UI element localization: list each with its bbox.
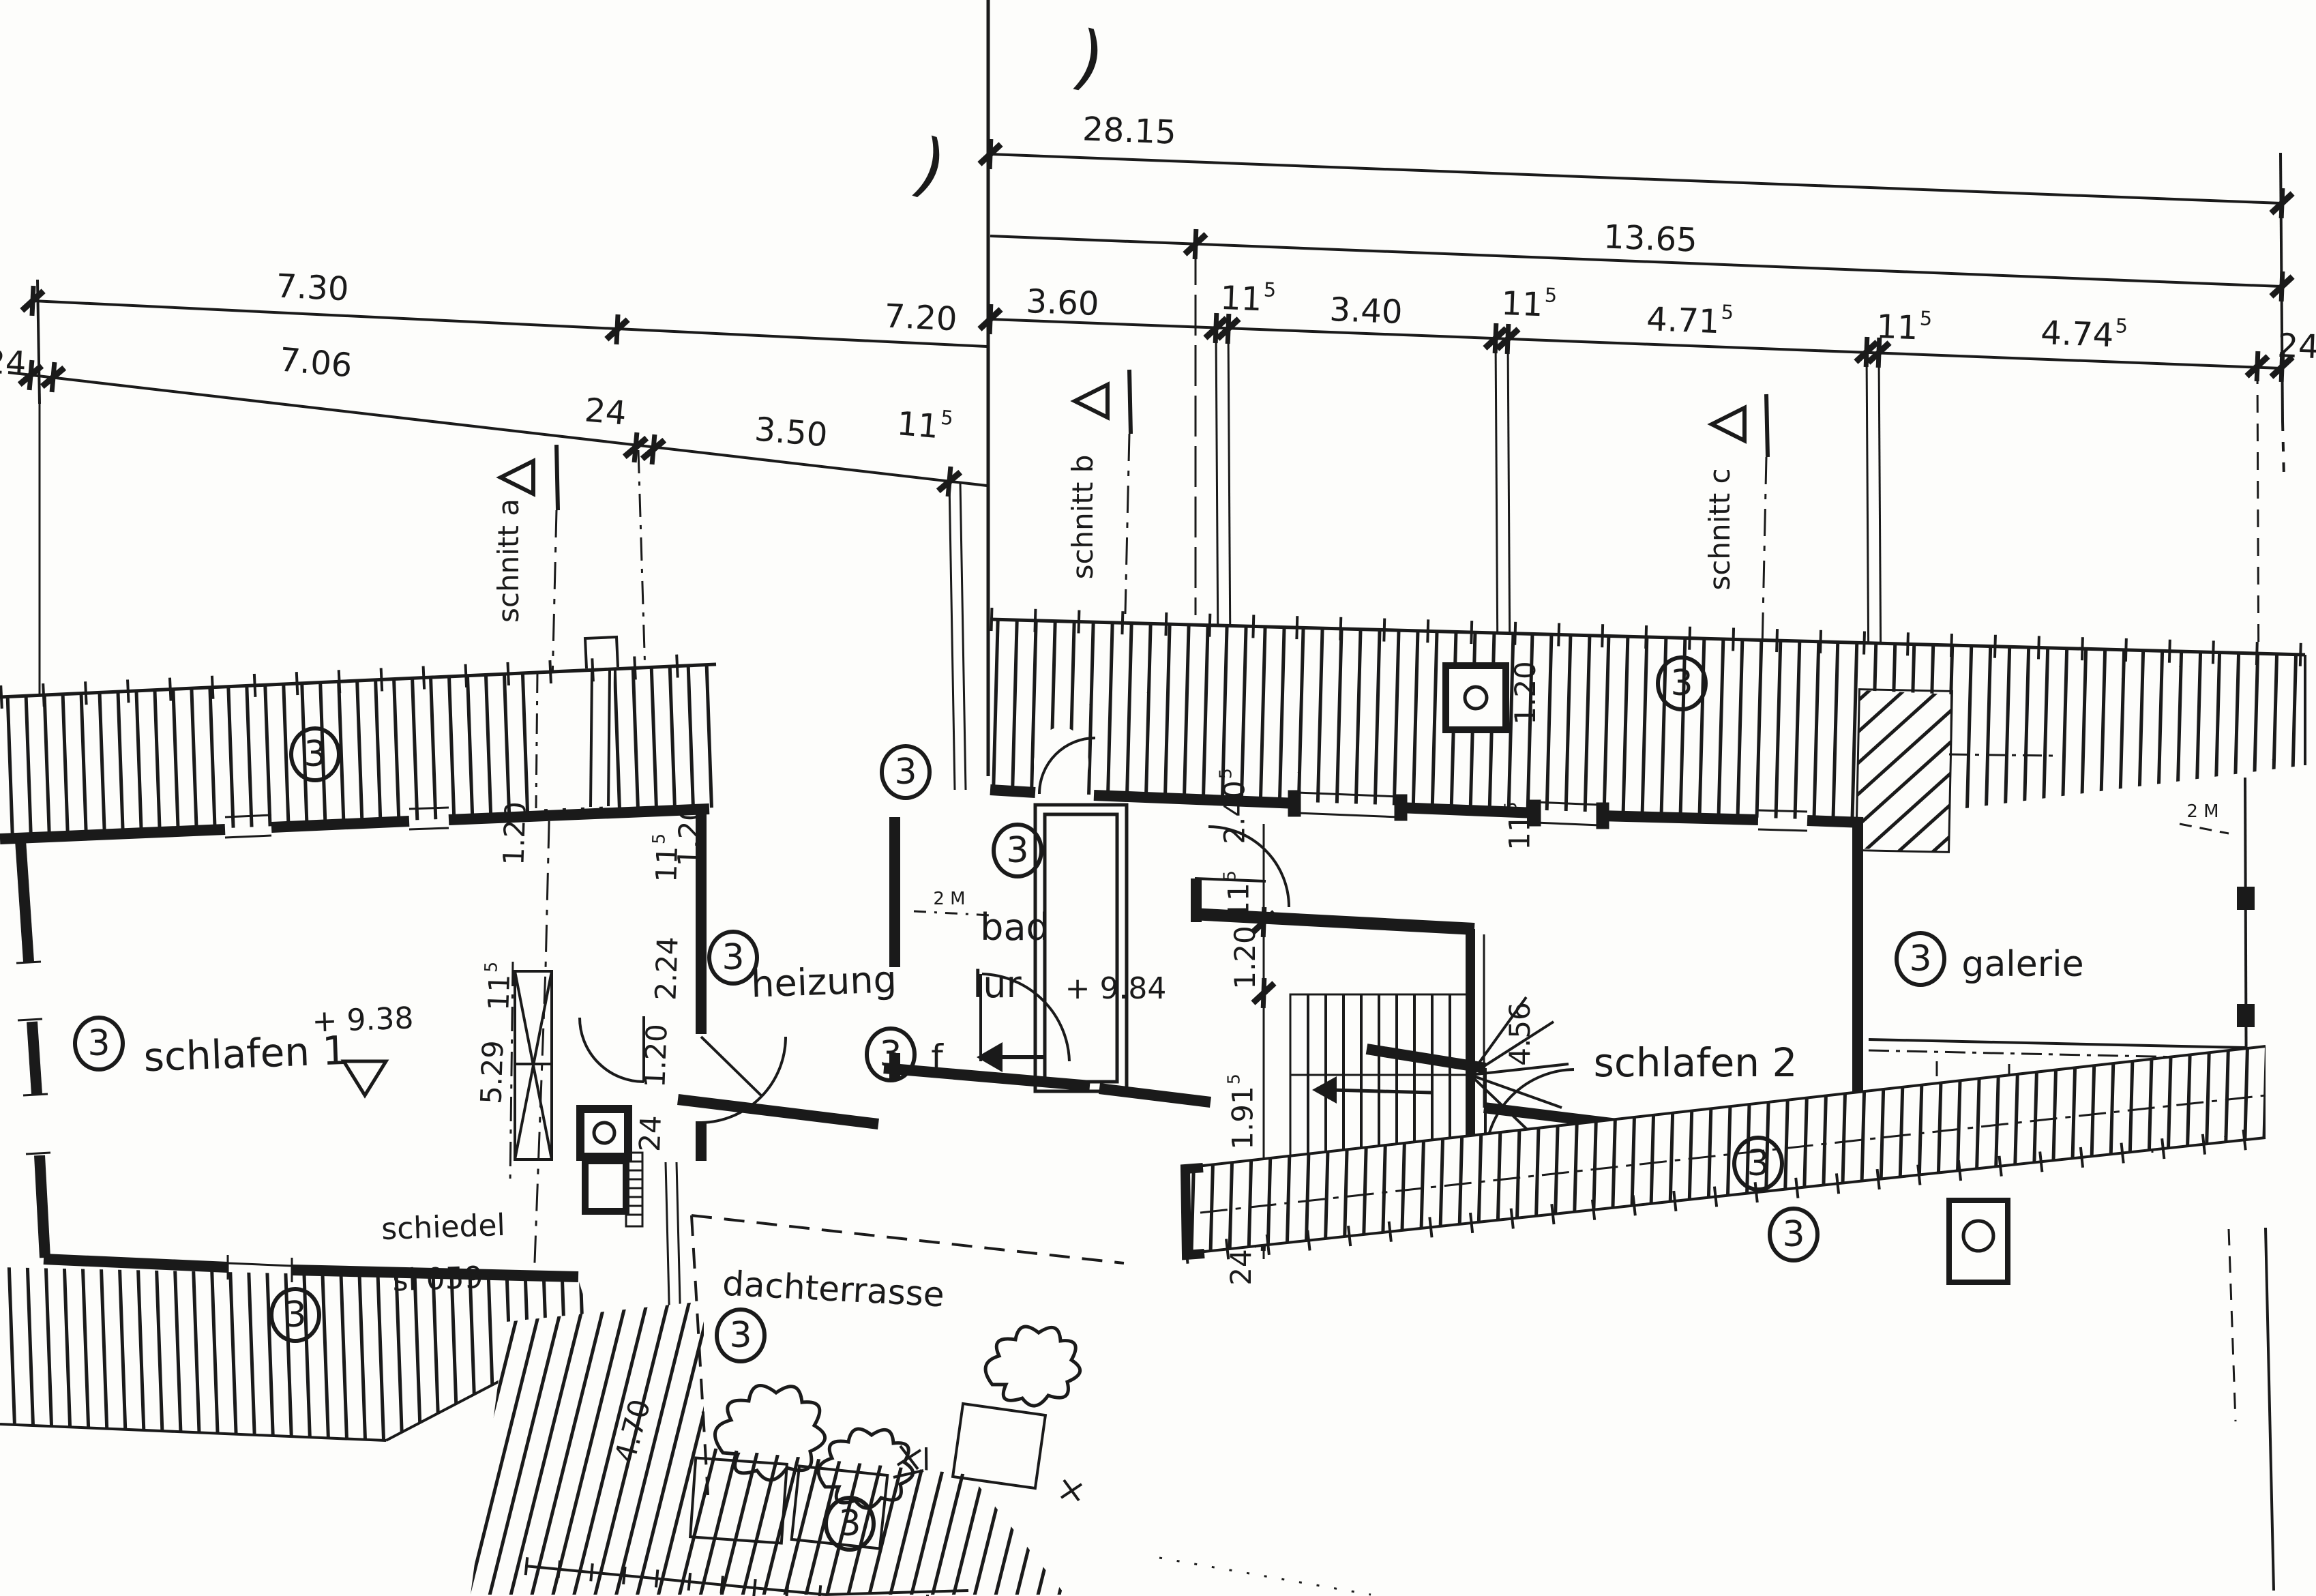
badge-roof-bottom-left: 3: [269, 1287, 321, 1343]
dim-13-65: 13.65: [1603, 220, 1697, 256]
dim-2-40-5: 2.405: [1220, 768, 1249, 844]
badge-flur: 3: [865, 1026, 917, 1082]
dim-7-06: 7.06: [278, 343, 354, 382]
section-label-b: schnitt b: [1069, 455, 1097, 580]
flue-box: [515, 971, 552, 1159]
roof-fixture-top: [1446, 666, 1506, 730]
badge-terrace-bottom: 3: [824, 1496, 876, 1552]
dim-11-5-schlafen2: 115: [1505, 801, 1534, 850]
chimney-note-line2: si 059: [392, 1263, 484, 1297]
dim-1-20-roofband: 1.20: [1511, 661, 1540, 725]
right-lower-edges: [2229, 1228, 2274, 1591]
dim-11-5-wall-left: 115: [484, 962, 514, 1011]
dim-11-5-left: 115: [895, 407, 953, 445]
dim-28-15: 28.15: [1082, 113, 1176, 149]
badge-schlafen1: 3: [73, 1016, 125, 1072]
galerie-stair-hatch: [1858, 690, 1950, 853]
badge-schlafen2: 3: [1732, 1136, 1784, 1192]
level-marker-9-38: [344, 1061, 386, 1095]
dim-24-right: 24: [2277, 329, 2316, 364]
dim-11-5-partition: 115: [651, 833, 682, 883]
chimney-note-line1: schiedel: [381, 1211, 506, 1245]
room-label-schlafen2: schlafen 2: [1594, 1043, 1798, 1082]
badge-galerie: 3: [1895, 931, 1946, 987]
scale-mark-tails: [914, 824, 2229, 915]
dim-24-heizung: 24: [636, 1115, 666, 1153]
badge-heizung: 3: [707, 930, 759, 986]
dim-1-20-heizung-door: 1.20: [640, 1024, 671, 1089]
section-label-c: schnitt c: [1706, 468, 1734, 590]
dim-24-mid: 24: [583, 394, 627, 430]
dim-4-74-5: 4.745: [2040, 316, 2128, 353]
dim-1-20-roof-left: 1.20: [499, 801, 530, 866]
scale-mark-1: 2 M: [933, 890, 965, 908]
badge-bad: 3: [992, 823, 1043, 878]
right-plan: [981, 619, 2305, 1591]
floorplan-sheet: 7.307.20247.06243.5011528.1513.653.60115…: [0, 0, 2316, 1596]
dim-7-30: 7.30: [275, 270, 349, 306]
dim-3-50: 3.50: [754, 413, 829, 452]
dim-3-40: 3.40: [1329, 293, 1404, 329]
room-label-flur: lur: [973, 966, 1021, 1003]
dim-2-24-heizung: 2.24: [651, 936, 682, 1001]
badge-dachterrasse: 3: [715, 1307, 767, 1363]
level-9-84: + 9.84: [1065, 974, 1167, 1004]
dim-1-20-flur: 1.20: [1231, 926, 1260, 990]
room-label-bad: bad: [980, 909, 1050, 946]
dim-4-56: 4.56: [1506, 1002, 1534, 1066]
badge-roof-top-right: 3: [1656, 655, 1708, 711]
dim-3-60: 3.60: [1026, 285, 1100, 321]
dim-24-left-edge: 24: [0, 345, 27, 380]
room-label-galerie: galerie: [1961, 947, 2083, 982]
room-label-flur-f: f: [931, 1040, 943, 1074]
plan-drawing: [0, 0, 2316, 1596]
room-label-heizung: heizung: [750, 961, 897, 1003]
dim-7-20: 7.20: [883, 300, 957, 336]
dim-5-29: 5.29: [477, 1040, 507, 1105]
scale-mark-2: 2 M: [2186, 803, 2218, 821]
dimension-ticks: [19, 138, 2293, 497]
dim-11-5-flur: 115: [1224, 870, 1253, 919]
section-label-a: schnitt a: [494, 499, 523, 623]
badge-roof-bottom-right: 3: [1768, 1207, 1820, 1262]
terrace-band-left: [471, 1301, 704, 1595]
roof-fixture-bottom: [1949, 1200, 2008, 1282]
level-9-38: + 9.38: [312, 1003, 414, 1037]
dim-11-5-r3: 115: [1875, 310, 1932, 345]
dim-11-5-r2: 115: [1500, 286, 1557, 322]
badge-roof-bad: 3: [880, 744, 932, 800]
dim-24-flur: 24: [1227, 1249, 1256, 1285]
dim-1-91-5: 1.915: [1228, 1074, 1258, 1150]
dim-4-71-5: 4.715: [1646, 302, 1734, 339]
dim-11-5-r1: 115: [1219, 281, 1276, 316]
badge-roof-top-left: 3: [289, 726, 341, 782]
